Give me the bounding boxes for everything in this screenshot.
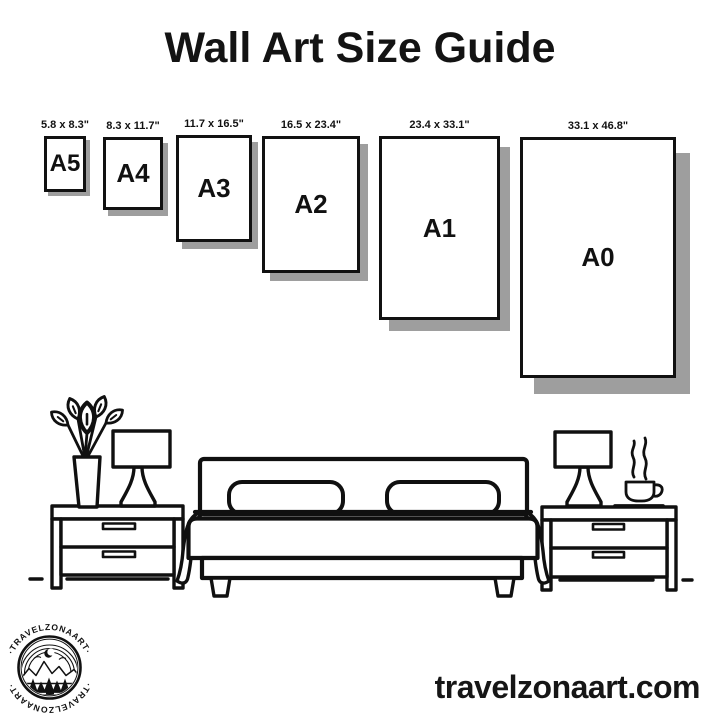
- website-text: travelzonaart.com: [435, 669, 700, 706]
- paper-a3-dims: 11.7 x 16.5": [184, 118, 244, 130]
- paper-a1-dims: 23.4 x 33.1": [409, 119, 469, 131]
- page-title: Wall Art Size Guide: [0, 24, 720, 73]
- paper-a3-sheet: A3: [176, 135, 252, 242]
- paper-a5-dims: 5.8 x 8.3": [41, 119, 89, 131]
- paper-a3-name: A3: [197, 173, 230, 204]
- paper-a2-name: A2: [294, 189, 327, 220]
- paper-a1-name: A1: [423, 213, 456, 244]
- paper-a5: 5.8 x 8.3" A5: [44, 136, 86, 192]
- coffee-cup-icon: [615, 438, 663, 506]
- bed-icon: [177, 459, 549, 596]
- paper-a2: 16.5 x 23.4" A2: [262, 136, 360, 273]
- nightstand-left-icon: [52, 506, 183, 588]
- paper-a3: 11.7 x 16.5" A3: [176, 135, 252, 242]
- paper-a5-name: A5: [50, 150, 81, 178]
- table-lamp-right-icon: [555, 432, 611, 506]
- nightstand-right-icon: [542, 507, 676, 590]
- paper-a1-sheet: A1: [379, 136, 500, 320]
- paper-a4-dims: 8.3 x 11.7": [106, 120, 160, 132]
- paper-a4: 8.3 x 11.7" A4: [103, 137, 163, 210]
- paper-a4-name: A4: [116, 158, 149, 189]
- paper-a2-dims: 16.5 x 23.4": [281, 119, 341, 131]
- paper-a2-sheet: A2: [262, 136, 360, 273]
- travelzonaart-logo: ·TRAVELZONAART· ·TRAVELZONAART·: [2, 617, 97, 718]
- table-lamp-left-icon: [113, 431, 170, 506]
- paper-a1: 23.4 x 33.1" A1: [379, 136, 500, 320]
- bedroom-illustration: [0, 380, 720, 600]
- paper-a4-sheet: A4: [103, 137, 163, 210]
- paper-a0-sheet: A0: [520, 137, 676, 378]
- paper-a0-dims: 33.1 x 46.8": [568, 120, 628, 132]
- paper-a0: 33.1 x 46.8" A0: [520, 137, 676, 378]
- paper-a0-name: A0: [581, 242, 614, 273]
- paper-a5-sheet: A5: [44, 136, 86, 192]
